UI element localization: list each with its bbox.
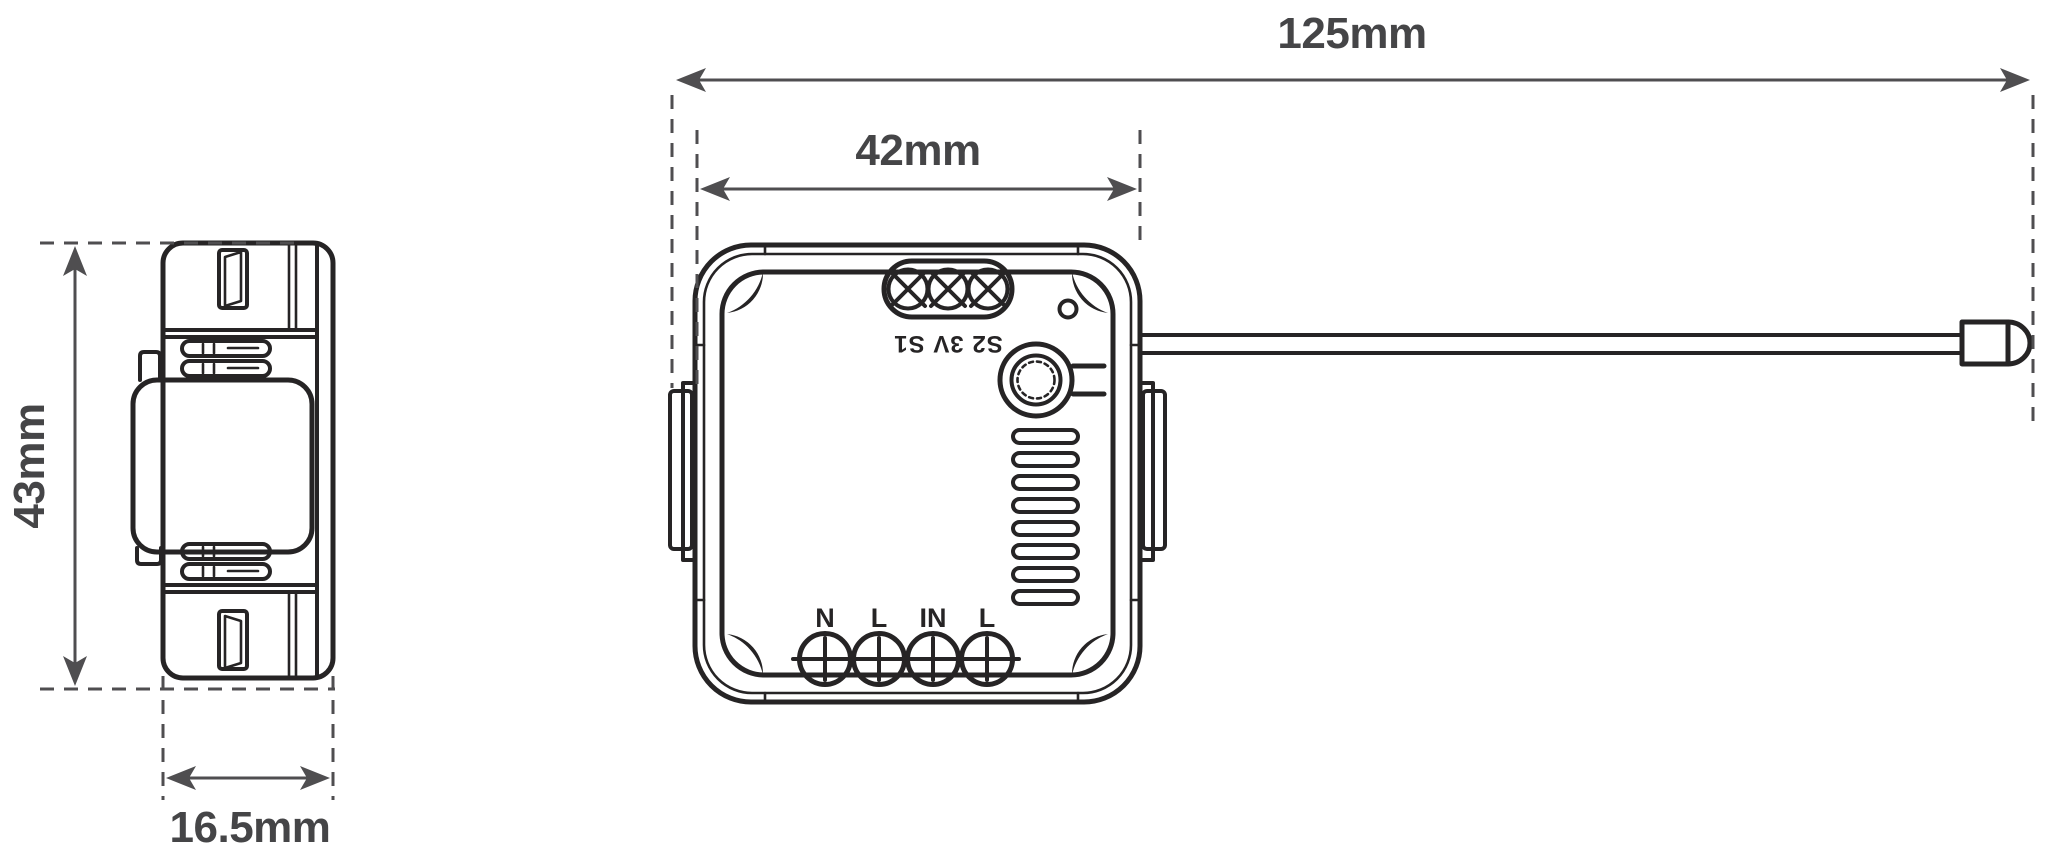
terminal-label-n: N [815, 603, 835, 633]
dim-label-body-height: 43mm [5, 403, 54, 528]
top-terminal-block: S2 3V S1 [884, 261, 1012, 357]
terminal-label-in: IN [920, 603, 947, 633]
terminal-label-l2: L [979, 603, 996, 633]
front-view: S2 3V S1 N L IN L [670, 245, 2030, 702]
side-vent-slots-upper [182, 341, 270, 376]
side-grooves [289, 244, 296, 676]
front-body-inner-edge [704, 254, 1131, 693]
dim-body-height: 43mm [5, 243, 335, 689]
dim-body-depth: 16.5mm [163, 676, 333, 852]
rail-clip-left [670, 383, 695, 560]
rail-clip-right [1140, 383, 1165, 560]
dim-label-total-width: 125mm [1277, 9, 1426, 58]
terminal-label-l1: L [871, 603, 888, 633]
side-vent-slots-lower [182, 544, 270, 579]
top-terminal-screws [889, 270, 1008, 309]
dim-label-body-depth: 16.5mm [170, 803, 331, 852]
front-vent-slots [1013, 430, 1078, 604]
top-terminal-label: S2 3V S1 [893, 330, 1002, 357]
antenna-cap [1962, 322, 2030, 364]
pairing-button [1000, 344, 1104, 416]
side-view [133, 243, 333, 678]
side-mount-plate [133, 380, 312, 552]
side-clip-bottom [219, 611, 247, 669]
dim-total-width: 125mm [672, 9, 2033, 428]
dim-label-body-width: 42mm [855, 126, 980, 175]
screw-icon [969, 270, 1008, 309]
bottom-terminal-labels: N L IN L [815, 603, 995, 633]
dimension-diagram: S2 3V S1 N L IN L [0, 0, 2048, 861]
antenna-wire [1142, 335, 1962, 353]
led-hole-icon [1060, 301, 1077, 318]
side-clip-top [219, 250, 247, 308]
screw-icon [929, 270, 968, 309]
screw-icon [889, 270, 928, 309]
